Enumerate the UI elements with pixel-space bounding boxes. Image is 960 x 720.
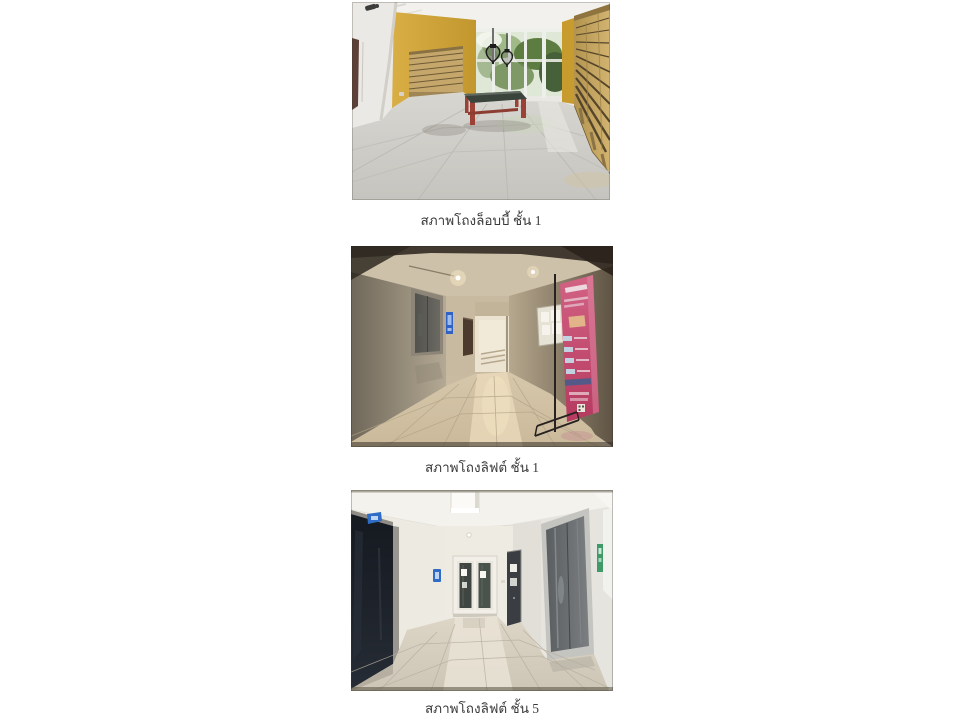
corridor-opening <box>475 302 509 372</box>
figure-caption-lobby: สภาพโถงล็อบบี้ ชั้น 1 <box>322 212 640 229</box>
round-ceiling-light <box>467 533 471 537</box>
brown-door <box>463 318 473 356</box>
accessibility-sign-blue <box>433 569 441 582</box>
figure-caption-lift-hall-5: สภาพโถงลิฟต์ ชั้น 5 <box>321 700 643 717</box>
lift-hall-floor-1-photo <box>351 246 613 447</box>
document-page: สภาพโถงล็อบบี้ ชั้น 1 <box>0 0 960 720</box>
ceiling-box-light <box>451 492 479 513</box>
double-glass-doors <box>453 556 505 617</box>
service-door-panel <box>507 550 521 626</box>
lift-hall-5-photo-image <box>351 490 613 691</box>
wall-outlet <box>399 92 404 96</box>
lobby-hall-floor-1-photo <box>352 2 610 200</box>
elevator-door-left <box>411 288 443 356</box>
lift-hall-1-photo-image <box>351 246 613 447</box>
blue-display-sign <box>446 312 453 334</box>
green-sign <box>597 544 603 572</box>
figure-caption-lift-hall-1: สภาพโถงลิฟต์ ชั้น 1 <box>321 459 643 476</box>
elevator-door-right <box>541 508 594 664</box>
window-glass-doors <box>476 28 571 98</box>
lobby-photo-image <box>352 2 610 200</box>
lift-hall-floor-5-photo <box>351 490 613 691</box>
yellow-pillar-right <box>562 18 574 104</box>
